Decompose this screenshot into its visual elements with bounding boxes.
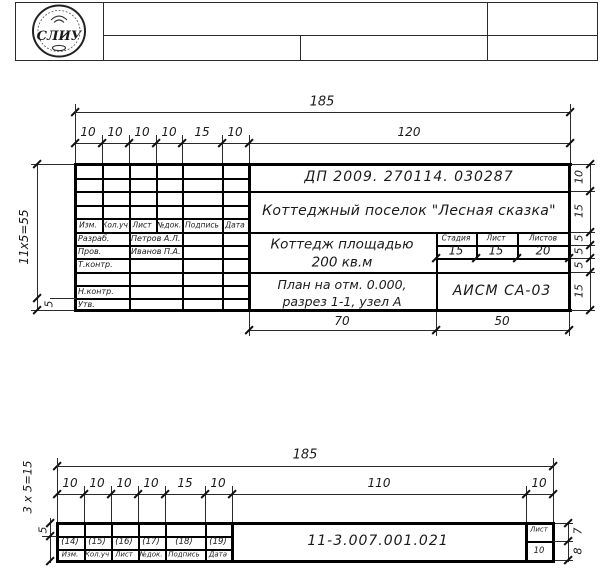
column-header: №док. bbox=[140, 552, 163, 559]
grid-line bbox=[248, 163, 251, 309]
dim-label: 10 bbox=[143, 477, 158, 489]
signature-role: Утв. bbox=[78, 298, 95, 311]
logo-stamp-icon: СЛИУ bbox=[30, 4, 88, 60]
dim-line bbox=[57, 466, 553, 467]
column-header: Кол.уч bbox=[85, 552, 109, 559]
grid-line bbox=[526, 541, 553, 543]
extension-line bbox=[569, 312, 570, 336]
column-header: Дата bbox=[225, 221, 244, 229]
sheet-label: Лист bbox=[530, 527, 548, 534]
grid-line bbox=[182, 166, 184, 309]
block-border bbox=[74, 309, 572, 312]
dim-label: 5 bbox=[38, 527, 49, 534]
column-header: №док. bbox=[157, 221, 182, 229]
dim-label: 10 bbox=[531, 477, 546, 489]
dim-label: 8 bbox=[573, 548, 584, 555]
block-border bbox=[568, 163, 571, 312]
dim-label: 50 bbox=[494, 315, 509, 327]
grid-line bbox=[103, 35, 598, 36]
dim-line bbox=[590, 164, 591, 311]
grid-line bbox=[231, 522, 234, 563]
dim-label: 5 bbox=[574, 262, 585, 269]
dim-label: 10 bbox=[89, 477, 104, 489]
extension-line bbox=[571, 310, 595, 311]
dim-line bbox=[50, 518, 51, 563]
column-header: Подпись bbox=[185, 221, 219, 229]
grid-line bbox=[205, 524, 207, 561]
grid-line bbox=[103, 2, 104, 61]
dim-label: 10 bbox=[161, 126, 176, 138]
stage-header: Стадия bbox=[442, 234, 471, 242]
stamp-text: СЛИУ bbox=[37, 29, 83, 44]
column-header: Изм. bbox=[62, 552, 78, 559]
dim-label: 15 bbox=[194, 126, 209, 138]
dim-label: 10 bbox=[227, 126, 242, 138]
column-header: Лист bbox=[132, 221, 151, 229]
dim-line bbox=[37, 164, 38, 311]
column-header: Дата bbox=[209, 552, 227, 559]
cell-number: (16) bbox=[115, 538, 132, 547]
cell-number: (19) bbox=[209, 538, 226, 547]
dim-label: 70 bbox=[334, 315, 349, 327]
sheet-value: 10 bbox=[534, 547, 545, 556]
dim-label: 20 bbox=[536, 245, 551, 257]
signature-name: Иванов П.А. bbox=[131, 245, 181, 258]
grid-line bbox=[165, 524, 167, 561]
cell-number: (17) bbox=[142, 538, 159, 547]
grid-line bbox=[436, 232, 438, 309]
extension-line bbox=[571, 245, 595, 246]
grid-line bbox=[487, 2, 488, 61]
dim-label: 185 bbox=[293, 449, 318, 462]
extension-line bbox=[571, 258, 595, 259]
grid-line bbox=[300, 35, 301, 61]
cell-number: (14) bbox=[61, 538, 78, 547]
dim-label: 10 bbox=[134, 126, 149, 138]
extension-line bbox=[50, 298, 76, 299]
cell-number: (15) bbox=[88, 538, 105, 547]
stage-header: Лист bbox=[486, 234, 505, 242]
dim-line bbox=[75, 112, 570, 113]
dim-label: 15 bbox=[574, 204, 585, 218]
dim-label: 5 bbox=[574, 248, 585, 255]
dim-label: 15 bbox=[489, 245, 504, 257]
dim-label: 10 bbox=[210, 477, 225, 489]
signature-name: Петров А.Л. bbox=[131, 232, 180, 245]
dim-line bbox=[57, 494, 553, 495]
dim-label: 3 x 5=15 bbox=[22, 460, 34, 513]
dim-label: 7 bbox=[573, 528, 584, 535]
column-header: Кол.уч bbox=[102, 221, 128, 229]
doc-number: ДП 2009. 270114. 030287 bbox=[304, 170, 513, 184]
extension-line bbox=[571, 191, 595, 192]
dim-label: 11x5=55 bbox=[18, 209, 30, 264]
dim-label: 15 bbox=[177, 477, 192, 489]
dim-line bbox=[75, 143, 570, 144]
block-border bbox=[74, 163, 572, 166]
project-name: Коттеджный поселок "Лесная сказка" bbox=[262, 204, 556, 218]
signature-role: Т.контр. bbox=[78, 258, 113, 271]
grid-line bbox=[525, 522, 528, 563]
grid-line bbox=[76, 272, 569, 274]
doc-number: 11-3.007.001.021 bbox=[307, 534, 448, 548]
block-border bbox=[56, 522, 59, 563]
cell-number: (18) bbox=[175, 538, 192, 547]
dim-label: 120 bbox=[398, 126, 421, 138]
extension-line bbox=[571, 272, 595, 273]
grid-line bbox=[436, 258, 569, 260]
block-border bbox=[56, 560, 555, 563]
extension-line bbox=[75, 104, 76, 164]
sheet-title-line2: разрез 1-1, узел А bbox=[282, 296, 401, 309]
signature-role: Разраб. bbox=[78, 232, 109, 245]
dim-line bbox=[249, 330, 569, 331]
object-name-line1: Коттедж площадью bbox=[270, 238, 413, 252]
grid-line bbox=[597, 2, 598, 61]
sheet-title-line1: План на отм. 0.000, bbox=[277, 279, 406, 292]
dim-label: 185 bbox=[310, 96, 335, 109]
extension-line bbox=[571, 164, 595, 165]
grid-line bbox=[15, 2, 16, 61]
dim-label: 15 bbox=[574, 284, 585, 298]
extension-line bbox=[571, 232, 595, 233]
dim-label: 5 bbox=[44, 301, 55, 308]
dim-label: 10 bbox=[116, 477, 131, 489]
grid-line bbox=[111, 524, 113, 561]
column-header: Изм. bbox=[79, 221, 97, 229]
extension-line bbox=[553, 541, 573, 542]
column-header: Подпись bbox=[168, 552, 200, 559]
grid-line bbox=[222, 166, 224, 309]
org-code: АИСМ СА-03 bbox=[453, 284, 552, 298]
signature-role: Н.контр. bbox=[78, 285, 114, 298]
dim-label: 5 bbox=[574, 235, 585, 242]
dim-label: 10 bbox=[107, 126, 122, 138]
block-border bbox=[74, 163, 77, 312]
signature-role: Пров. bbox=[78, 245, 101, 258]
extension-line bbox=[570, 104, 571, 164]
column-header: Лист bbox=[115, 552, 133, 559]
tick-mark bbox=[46, 557, 55, 566]
block-border bbox=[56, 522, 555, 525]
object-name-line2: 200 кв.м bbox=[312, 256, 373, 270]
extension-line bbox=[249, 312, 250, 336]
drawing-sheet: СЛИУ 185 10 10 10 10 15 10 120 bbox=[0, 0, 600, 570]
grid-line bbox=[76, 191, 569, 193]
dim-label: 10 bbox=[62, 477, 77, 489]
dim-label: 15 bbox=[449, 245, 464, 257]
extension-line bbox=[436, 312, 437, 336]
dim-label: 110 bbox=[368, 477, 391, 489]
stage-header: Листов bbox=[529, 234, 557, 242]
dim-label: 10 bbox=[80, 126, 95, 138]
dim-label: 10 bbox=[574, 170, 585, 184]
